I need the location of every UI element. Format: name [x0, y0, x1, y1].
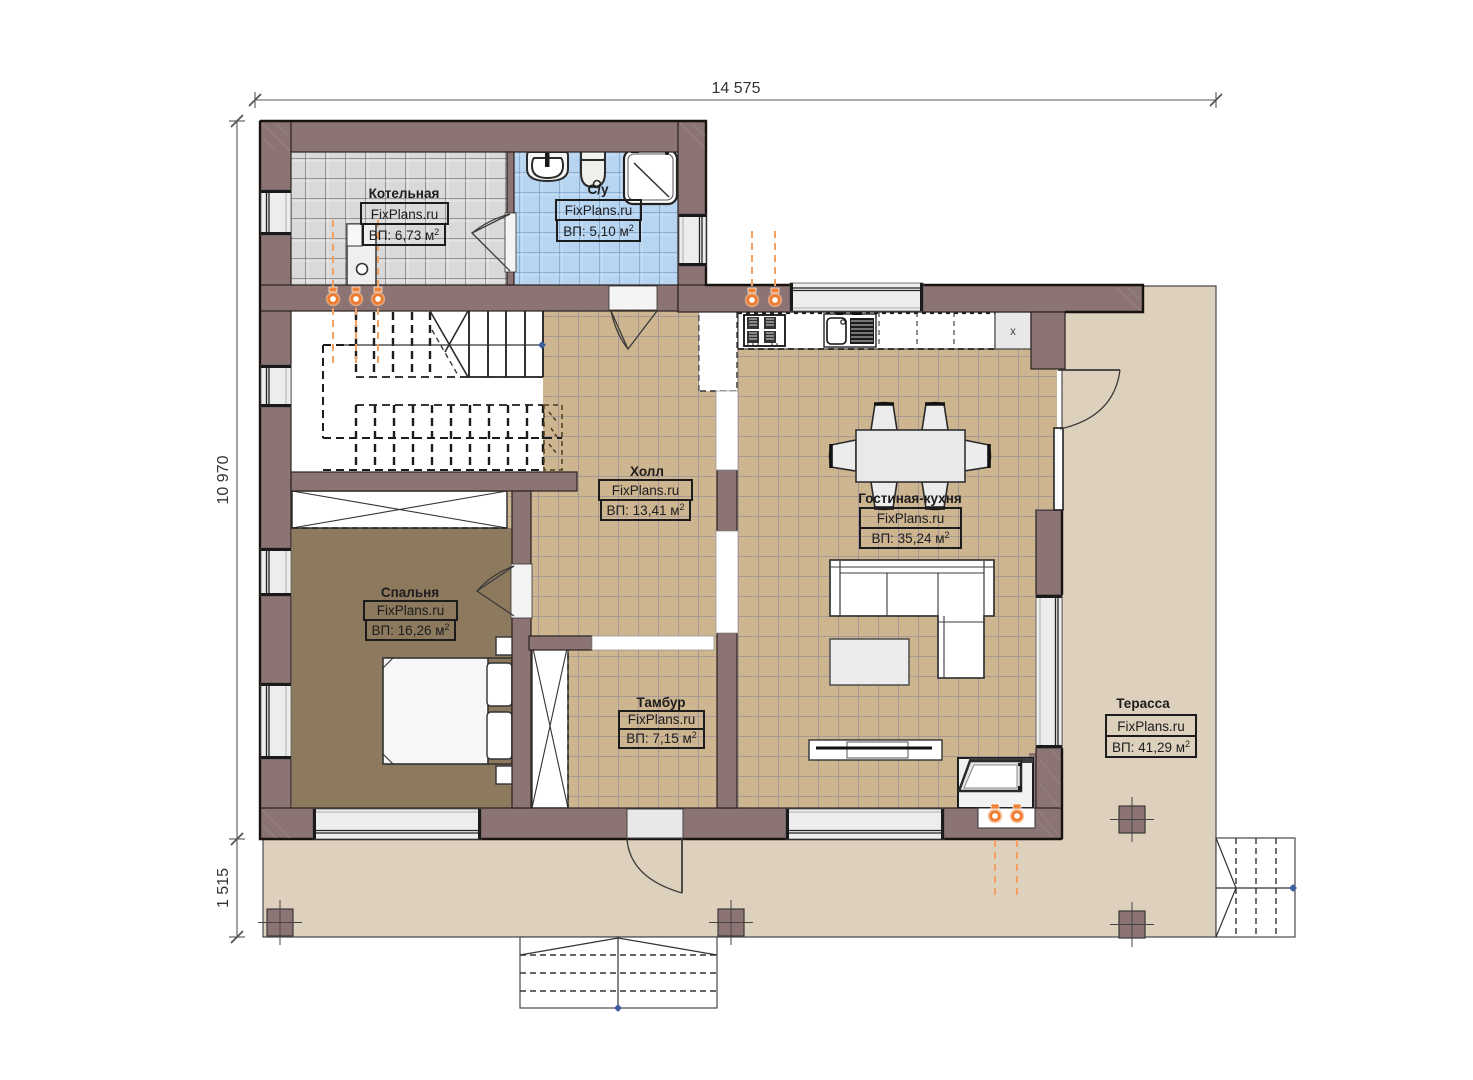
svg-text:14 575: 14 575 — [712, 80, 761, 97]
svg-text:ВП: 35,24 м2: ВП: 35,24 м2 — [871, 530, 949, 546]
svg-text:С/у: С/у — [587, 182, 609, 197]
svg-text:ВП: 5,10 м2: ВП: 5,10 м2 — [563, 223, 634, 239]
svg-text:ВП: 41,29 м2: ВП: 41,29 м2 — [1112, 739, 1190, 755]
svg-text:Гостиная-кухня: Гостиная-кухня — [858, 491, 961, 506]
svg-text:FixPlans.ru: FixPlans.ru — [628, 712, 696, 727]
svg-text:FixPlans.ru: FixPlans.ru — [612, 483, 680, 498]
svg-text:ВП: 6,73 м2: ВП: 6,73 м2 — [369, 227, 440, 243]
svg-text:x: x — [1010, 326, 1016, 338]
svg-text:10 970: 10 970 — [215, 455, 232, 504]
svg-text:Холл: Холл — [630, 464, 664, 479]
svg-text:ВП: 13,41 м2: ВП: 13,41 м2 — [606, 502, 684, 518]
svg-text:FixPlans.ru: FixPlans.ru — [565, 203, 633, 218]
svg-text:FixPlans.ru: FixPlans.ru — [371, 207, 439, 222]
svg-text:ВП: 7,15 м2: ВП: 7,15 м2 — [626, 730, 697, 746]
svg-text:FixPlans.ru: FixPlans.ru — [377, 603, 445, 618]
svg-text:ВП: 16,26 м2: ВП: 16,26 м2 — [371, 622, 449, 638]
svg-text:FixPlans.ru: FixPlans.ru — [877, 511, 945, 526]
svg-text:1 515: 1 515 — [215, 868, 232, 908]
svg-text:Тамбур: Тамбур — [637, 695, 686, 710]
svg-text:Котельная: Котельная — [369, 186, 440, 201]
svg-text:Терасса: Терасса — [1116, 696, 1170, 711]
svg-text:FixPlans.ru: FixPlans.ru — [1117, 719, 1185, 734]
svg-text:Спальня: Спальня — [381, 585, 439, 600]
